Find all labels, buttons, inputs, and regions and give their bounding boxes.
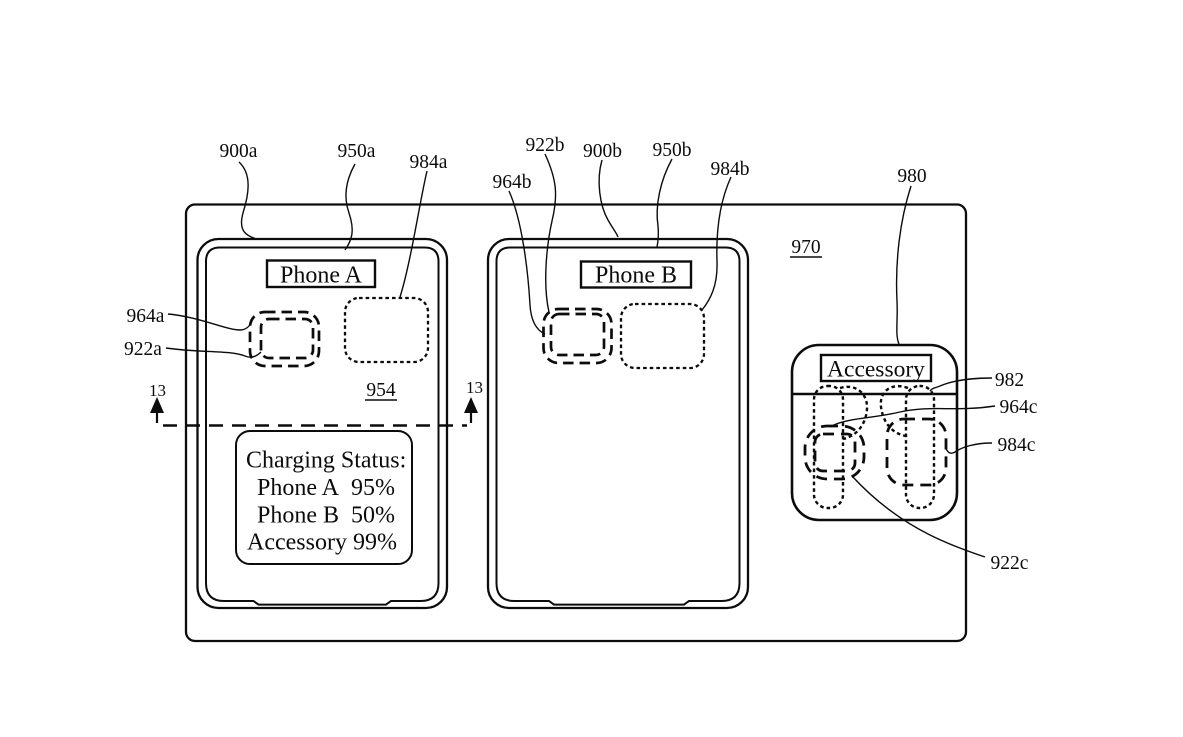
svg-text:984a: 984a: [410, 152, 448, 173]
svg-text:Charging Status:: Charging Status:: [246, 448, 406, 474]
svg-text:964b: 964b: [493, 172, 532, 193]
svg-text:Phone A 95%: Phone A 95%: [257, 475, 395, 501]
svg-text:964a: 964a: [127, 306, 165, 327]
svg-text:922b: 922b: [526, 135, 565, 156]
svg-text:922c: 922c: [991, 553, 1029, 574]
svg-text:950b: 950b: [653, 140, 692, 161]
svg-text:Phone B: Phone B: [595, 263, 677, 289]
svg-text:13: 13: [149, 381, 166, 400]
svg-text:900a: 900a: [220, 141, 258, 162]
svg-text:900b: 900b: [583, 141, 622, 162]
svg-text:984b: 984b: [711, 159, 750, 180]
svg-text:950a: 950a: [338, 141, 376, 162]
svg-text:13: 13: [466, 378, 483, 397]
svg-text:954: 954: [366, 380, 396, 401]
svg-text:980: 980: [897, 166, 926, 187]
svg-text:982: 982: [995, 370, 1024, 391]
svg-text:Phone A: Phone A: [280, 263, 363, 289]
svg-text:984c: 984c: [998, 435, 1036, 456]
svg-text:Accessory: Accessory: [827, 357, 925, 383]
svg-text:964c: 964c: [1000, 397, 1038, 418]
svg-text:Accessory 99%: Accessory 99%: [247, 530, 397, 556]
svg-text:970: 970: [791, 237, 820, 258]
svg-text:Phone B 50%: Phone B 50%: [257, 503, 395, 529]
svg-text:922a: 922a: [124, 339, 162, 360]
